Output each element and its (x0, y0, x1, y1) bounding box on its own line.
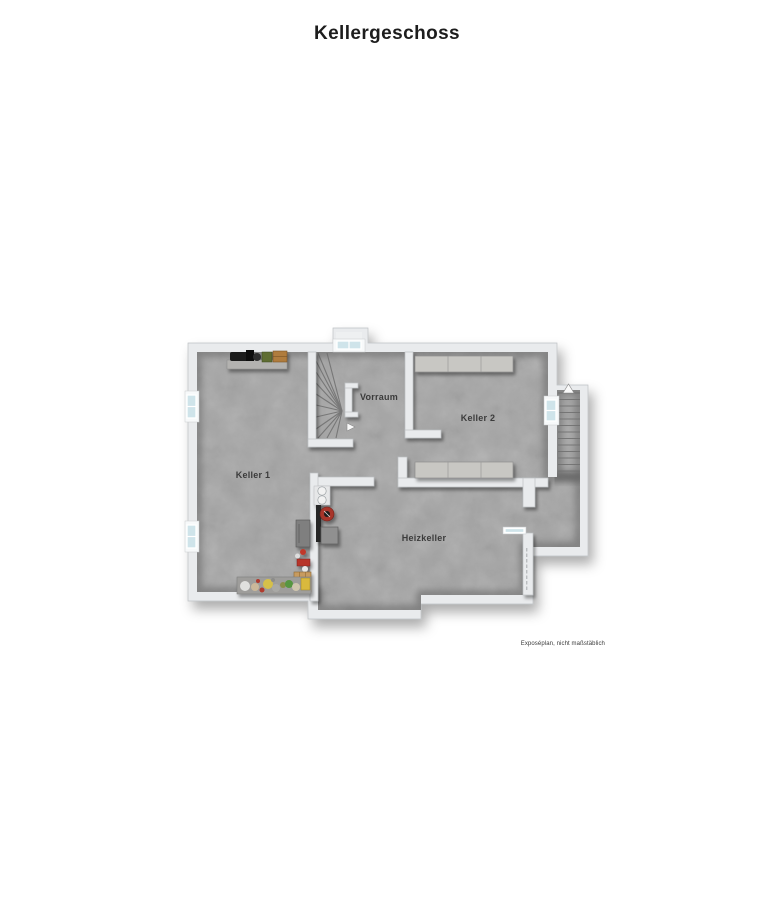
floorplan-svg: Keller 1 Vorraum Keller 2 Heizkeller (0, 0, 774, 900)
page: Kellergeschoss (0, 0, 774, 900)
disclaimer-note: Exposéplan, nicht maßstäblich (404, 641, 605, 647)
room-label-heizkeller: Heizkeller (402, 533, 447, 543)
room-label-vorraum: Vorraum (360, 392, 398, 402)
room-label-keller2: Keller 2 (461, 413, 496, 423)
window-left-lower-icon (185, 521, 199, 552)
window-top-lightwell-icon (333, 339, 365, 352)
room-label-keller1: Keller 1 (236, 470, 271, 480)
window-left-upper-icon (185, 391, 199, 422)
window-right-icon (544, 396, 559, 425)
shelving-keller2-top-icon (415, 356, 513, 372)
door-leaf-icon (503, 527, 526, 534)
shelving-keller2-bottom-icon (415, 462, 513, 478)
